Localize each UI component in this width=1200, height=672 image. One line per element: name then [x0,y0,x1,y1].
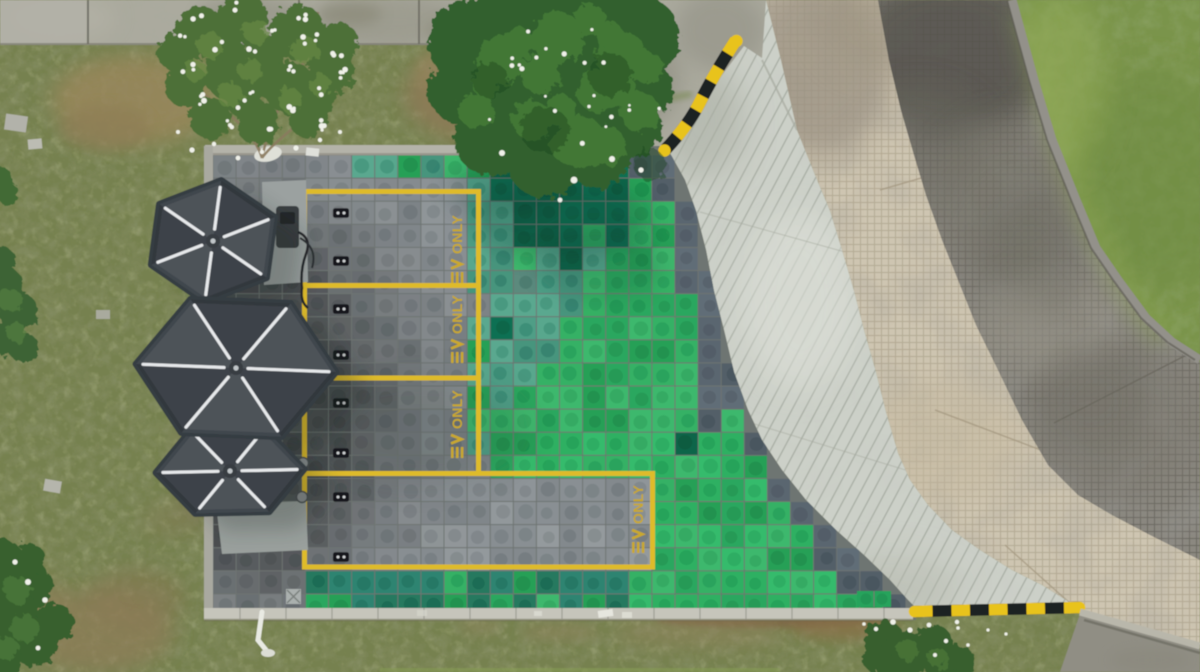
svg-text:ONLY: ONLY [449,390,465,429]
svg-text:ONLY: ONLY [449,295,465,334]
svg-text:ONLY: ONLY [630,485,646,524]
svg-text:ONLY: ONLY [449,215,465,254]
